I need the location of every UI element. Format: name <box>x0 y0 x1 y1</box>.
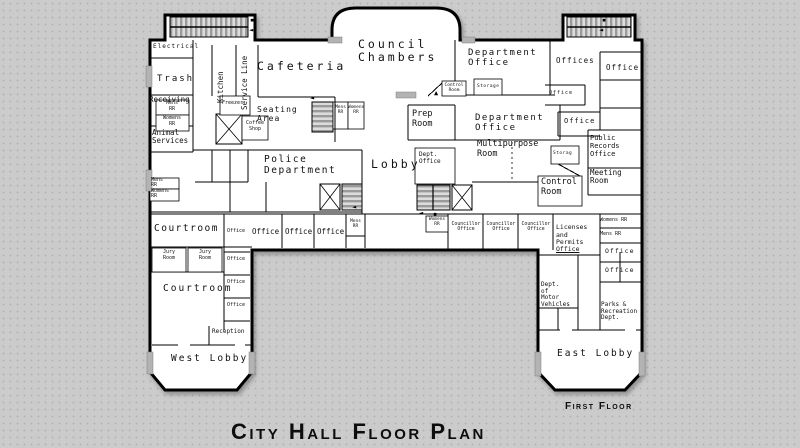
room-label-prep-room: Prep Room <box>412 110 432 129</box>
room-label-office-r2: Office <box>549 91 573 97</box>
room-label-dept-office-center: Dept. Office <box>419 152 441 165</box>
room-label-kitchen: Kitchen <box>217 71 225 103</box>
room-label-office-rc1: Office <box>605 248 634 255</box>
room-label-dept-motor-vehicles: Dept. of Motor Vehicles <box>541 282 570 309</box>
elevator-kitchen <box>216 114 242 144</box>
room-label-jury-room-1: Jury Room <box>153 250 185 261</box>
room-label-storage-a: Storage <box>477 84 499 89</box>
room-label-mens-rr-b: Mens RR <box>333 105 348 115</box>
room-label-animal-services: Animal Services <box>152 129 188 146</box>
room-label-mens-rr-e: Mens RR <box>600 232 621 238</box>
room-label-offices: Offices <box>556 57 595 65</box>
room-label-office-r1: Office <box>606 64 639 72</box>
floor-plan-drawing <box>0 0 800 448</box>
room-label-council-control-room: Control Room <box>442 83 466 93</box>
room-label-womens-rr-c: Womens RR <box>151 189 169 199</box>
room-label-police-department: Police Department <box>264 155 336 176</box>
room-label-office-row-d: Office <box>317 228 344 236</box>
room-label-meeting-room: Meeting Room <box>590 169 622 186</box>
room-label-womens-rr-a: Womens RR <box>157 116 187 127</box>
room-label-seating-area: Seating Area <box>257 106 298 124</box>
room-label-freezer: Freezer <box>222 101 243 107</box>
room-label-councillor-office-1: Councillor Office <box>449 222 483 233</box>
room-label-department-office-top: Department Office <box>468 48 537 68</box>
room-label-department-office-mid: Department Office <box>475 113 544 133</box>
room-label-multipurpose-room: Multipurpose Room <box>477 140 538 159</box>
room-label-office-row-a: Office <box>227 229 245 235</box>
room-label-courtroom-2: Courtroom <box>163 284 232 295</box>
stairs-top-left <box>170 17 248 37</box>
room-label-councillor-office-2: Councillor Office <box>484 222 518 233</box>
room-label-office-col-3: Office <box>227 303 245 309</box>
stairs-lobby-center <box>417 185 472 210</box>
room-label-parks-recreation: Parks & Recreation Dept. <box>601 302 637 322</box>
room-label-councillor-office-3: Councillor Office <box>519 222 553 233</box>
room-label-trash: Trash <box>157 74 194 84</box>
room-label-mens-rr-c: Mens RR <box>151 178 163 188</box>
room-label-cafeteria: Cafeteria <box>257 60 346 73</box>
stair-arrow-icon: ◄ <box>352 204 356 211</box>
floor-plan-canvas: Electrical Trash Receiving Mens RR Women… <box>0 0 800 448</box>
door-bar-icon: ▪ <box>250 17 254 24</box>
room-label-office-r3: Office <box>564 118 595 126</box>
room-label-control-room-mid: Control Room <box>541 178 577 197</box>
page-title: City Hall Floor Plan <box>231 419 486 445</box>
stair-arrow-icon: ◄ <box>599 27 603 34</box>
room-label-jury-room-2: Jury Room <box>189 250 221 261</box>
entry-arrow-icon: ▲ <box>434 90 438 97</box>
room-label-storage-b: Storag <box>553 151 572 156</box>
room-label-office-rc2: Office <box>605 267 634 274</box>
room-label-womens-rr-e: Womens RR <box>600 218 627 224</box>
room-label-public-records-office: Public Records Office <box>590 135 620 158</box>
room-label-womens-rr-d: Womens RR <box>426 217 448 227</box>
room-label-mens-rr-a: Mens RR <box>158 101 186 112</box>
stair-arrow-icon: ◄ <box>249 27 253 34</box>
room-label-courtroom-1: Courtroom <box>154 224 219 235</box>
stair-arrow-icon: ◄ <box>310 95 314 102</box>
room-label-reception: Reception <box>212 329 245 336</box>
room-label-electrical: Electrical <box>153 44 199 51</box>
door-bar-icon: ▪ <box>602 17 606 24</box>
room-label-west-lobby: West Lobby <box>171 354 248 365</box>
room-label-womens-rr-b: Womens RR <box>348 105 364 115</box>
room-label-mens-rr-d: Mens RR <box>347 219 364 229</box>
door-bar-icon: ▪ <box>433 211 437 218</box>
room-label-council-chambers: Council Chambers <box>358 38 437 64</box>
floor-caption: First Floor <box>565 401 633 412</box>
room-label-lobby: Lobby <box>371 158 421 171</box>
room-label-office-col-1: Office <box>227 257 245 263</box>
stair-arrow-icon: ◄ <box>419 210 423 217</box>
room-label-office-row-c: Office <box>285 228 312 236</box>
room-label-office-row-b: Office <box>252 228 279 236</box>
room-label-licenses-permits-office: Licenses and PermitsOffice <box>556 217 587 261</box>
room-label-east-lobby: East Lobby <box>557 349 634 360</box>
